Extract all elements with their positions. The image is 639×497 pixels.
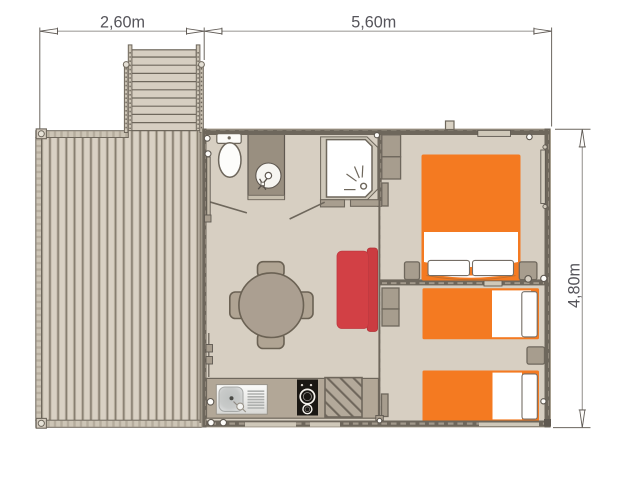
svg-text:4,80m: 4,80m	[565, 263, 583, 308]
svg-text:5,60m: 5,60m	[351, 14, 396, 32]
svg-text:2,60m: 2,60m	[100, 14, 145, 32]
